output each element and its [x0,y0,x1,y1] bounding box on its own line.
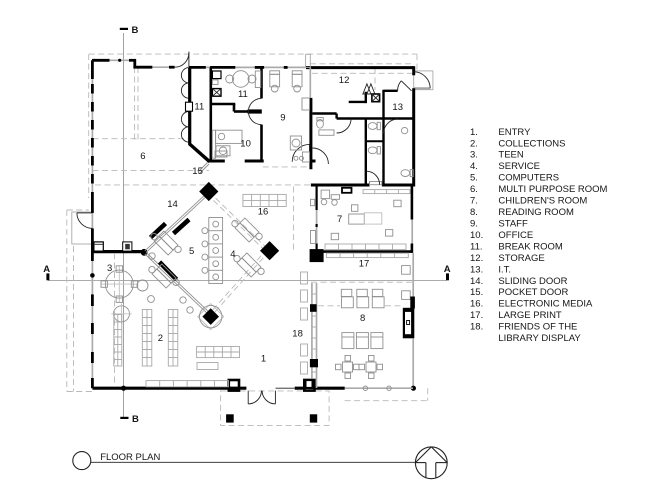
svg-text:READING ROOM: READING ROOM [498,207,574,218]
svg-text:3.: 3. [470,150,478,161]
svg-text:8: 8 [360,313,365,324]
svg-text:5: 5 [189,246,194,257]
svg-text:I.T.: I.T. [498,264,511,275]
svg-text:2.: 2. [470,138,478,149]
svg-text:B: B [132,25,139,36]
svg-text:15: 15 [192,166,203,177]
svg-text:7: 7 [337,214,342,225]
svg-text:12.: 12. [470,253,483,264]
svg-text:TEEN: TEEN [498,150,523,161]
svg-text:MULTI PURPOSE ROOM: MULTI PURPOSE ROOM [498,184,607,195]
svg-text:COLLECTIONS: COLLECTIONS [498,138,565,149]
svg-text:1.: 1. [470,127,478,138]
svg-text:ENTRY: ENTRY [498,127,531,138]
svg-text:14.: 14. [470,276,483,287]
svg-text:B: B [132,414,139,425]
svg-text:13: 13 [392,102,403,113]
svg-text:5.: 5. [470,173,478,184]
svg-text:18.: 18. [470,322,483,333]
svg-text:10: 10 [240,139,251,150]
svg-text:9.: 9. [470,219,478,230]
svg-text:COMPUTERS: COMPUTERS [498,173,559,184]
svg-text:13.: 13. [470,264,483,275]
svg-text:1: 1 [261,353,266,364]
svg-text:6.: 6. [470,184,478,195]
svg-text:FRIENDS OF THE: FRIENDS OF THE [498,322,577,333]
svg-text:8.: 8. [470,207,478,218]
svg-text:OFFICE: OFFICE [498,230,533,241]
svg-text:ELECTRONIC MEDIA: ELECTRONIC MEDIA [498,299,593,310]
svg-text:12: 12 [339,75,350,86]
svg-text:4.: 4. [470,161,478,172]
svg-text:14: 14 [167,199,178,210]
svg-text:4: 4 [230,249,235,260]
svg-text:LIBRARY DISPLAY: LIBRARY DISPLAY [498,333,581,344]
svg-text:11: 11 [238,89,248,100]
svg-text:CHILDREN'S ROOM: CHILDREN'S ROOM [498,196,587,207]
svg-text:6: 6 [140,151,145,162]
svg-text:11.: 11. [470,241,483,252]
svg-text:STAFF: STAFF [498,219,528,230]
svg-text:LARGE PRINT: LARGE PRINT [498,310,562,321]
svg-text:BREAK ROOM: BREAK ROOM [498,241,562,252]
svg-text:SLIDING DOOR: SLIDING DOOR [498,276,567,287]
svg-text:SERVICE: SERVICE [498,161,540,172]
svg-text:A: A [444,264,451,275]
svg-text:FLOOR PLAN: FLOOR PLAN [100,452,160,463]
svg-text:11: 11 [194,102,204,113]
svg-text:16: 16 [258,207,269,218]
svg-text:10.: 10. [470,230,483,241]
svg-text:POCKET DOOR: POCKET DOOR [498,287,568,298]
svg-text:STORAGE: STORAGE [498,253,544,264]
svg-text:18: 18 [292,329,303,340]
svg-text:3: 3 [107,263,112,274]
svg-text:7.: 7. [470,196,478,207]
svg-text:9: 9 [280,113,285,124]
svg-text:17.: 17. [470,310,483,321]
svg-text:17: 17 [359,259,370,270]
svg-text:2: 2 [158,333,163,344]
svg-text:16.: 16. [470,299,483,310]
svg-text:15.: 15. [470,287,483,298]
svg-text:A: A [43,264,50,275]
